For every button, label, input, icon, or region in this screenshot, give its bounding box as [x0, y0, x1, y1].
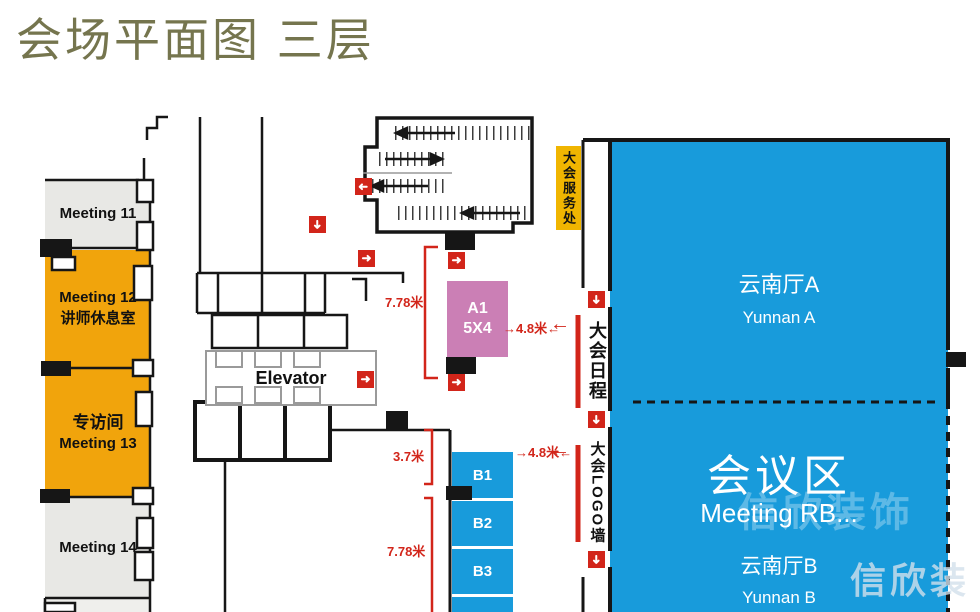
route-arrow-right-icon: ➜ [448, 374, 465, 391]
elevator-notch [293, 386, 321, 404]
room-sublabel: Meeting 13 [59, 434, 137, 454]
stair-treads-row2 [379, 152, 444, 166]
hall-yunnan: 云南厅A Yunnan A 会议区 Meeting RB... 云南厅B Yun… [610, 142, 948, 612]
route-arrow-right-icon: ➜ [358, 250, 375, 267]
room-meeting-12: Meeting 12 讲师休息室 [45, 250, 151, 368]
booth-b1: B1 [452, 452, 513, 498]
route-arrow-down-icon: ➜ [588, 291, 605, 308]
dim-778-lower: 7.78米 [387, 541, 425, 560]
room-sublabel: 讲师休息室 [60, 308, 135, 330]
booth-b1-label: B1 [473, 467, 492, 484]
route-arrow-down-icon: ➜ [588, 411, 605, 428]
dim-778-upper: 7.78米 [385, 292, 423, 311]
stair-treads-row4 [398, 206, 530, 220]
room-meeting-11: Meeting 11 [45, 180, 151, 248]
booth-b2-label: B2 [473, 515, 492, 532]
room-label: Meeting 12 [59, 288, 137, 308]
booth-a1: A1 5X4 [447, 281, 508, 357]
watermark: 信欣装饰 [850, 552, 980, 612]
route-arrow-right-icon: ➜ [448, 252, 465, 269]
route-arrow-left-icon: ➜ [355, 178, 372, 195]
floorplan-canvas: 会场平面图 三层 Meeting 11 Meeting 12 讲师休息室 专访间… [0, 0, 980, 612]
sign-agenda-wall: 大会日程 [584, 313, 610, 409]
elevator-lower-cells [195, 402, 330, 460]
booth-a1-size: 5X4 [463, 319, 491, 339]
booth-b3-label: B3 [473, 563, 492, 580]
booth-a1-id: A1 [467, 299, 487, 319]
room-label: Meeting 11 [60, 204, 137, 224]
stair-treads-row1 [395, 126, 530, 140]
route-arrow-down-icon: ➜ [588, 551, 605, 568]
page-title: 会场平面图 三层 [16, 4, 375, 70]
hall-label-yunnan-a: 云南厅A [610, 267, 948, 299]
dim-37: 3.7米 [393, 446, 424, 465]
room-meeting-14: Meeting 14 [45, 497, 151, 598]
elevator-notch [215, 386, 243, 404]
stair-treads-row3 [372, 179, 444, 193]
watermark: 信欣装饰 [738, 480, 914, 538]
room-partial-bottom [45, 599, 151, 612]
elevator-notch [254, 350, 282, 368]
stair-direction-arrows [372, 128, 520, 218]
elevator-notch [293, 350, 321, 368]
sign-logo-wall: 大会LOGO墙 [584, 438, 610, 548]
red-left-arrow-icon: ← [550, 442, 570, 458]
hall-label-yunnan-a-en: Yunnan A [610, 308, 948, 328]
elevator-notch [215, 350, 243, 368]
room-label: Meeting 14 [59, 538, 137, 558]
room-label: 专访间 [73, 412, 124, 434]
route-arrow-right-icon: ➜ [357, 371, 374, 388]
route-arrow-down-icon: ➜ [309, 216, 326, 233]
booth-b4-partial [452, 597, 513, 612]
elevator-notch [254, 386, 282, 404]
sign-service-desk: 大会服务处 [556, 146, 581, 230]
booth-b2: B2 [452, 501, 513, 546]
booth-b3: B3 [452, 549, 513, 594]
red-left-arrow-icon: ← [550, 316, 570, 332]
room-meeting-13: 专访间 Meeting 13 [45, 368, 151, 497]
